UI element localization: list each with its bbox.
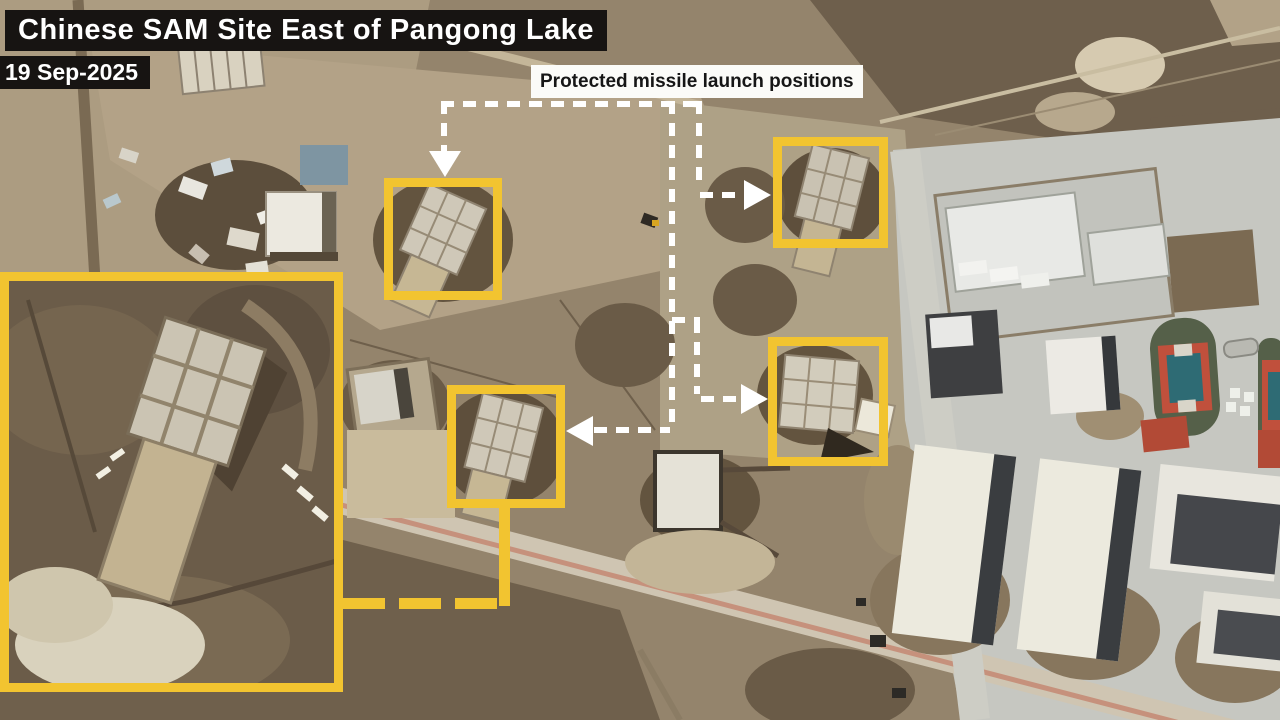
highlight-box-launch-position-1 <box>384 178 502 300</box>
down-arrow-icon <box>429 151 461 177</box>
dashed-path-to-box3-vertical <box>694 320 700 394</box>
date-badge: 19 Sep-2025 <box>0 56 150 89</box>
dashed-path-to-box3-horizontal <box>701 396 742 402</box>
inset-connector-line-dashed <box>343 598 503 609</box>
dark-roof-building <box>925 310 1003 399</box>
right-arrow-icon <box>741 384 768 414</box>
apron-centre <box>347 430 455 518</box>
page-title: Chinese SAM Site East of Pangong Lake <box>5 10 607 51</box>
callout-label: Protected missile launch positions <box>531 65 863 98</box>
white-building-west <box>266 192 338 261</box>
left-arrow-icon <box>566 416 593 446</box>
dark-panel-building-lower <box>1196 591 1280 671</box>
dashed-path-to-box2-horizontal <box>700 192 744 198</box>
dashed-path-to-box4 <box>594 427 670 433</box>
dashed-path-to-box2-vertical <box>696 101 702 188</box>
dashed-path-to-box1 <box>441 101 447 153</box>
highlight-box-launch-position-3 <box>768 337 888 466</box>
highlight-box-launch-position-2 <box>773 137 888 248</box>
inset-connector-line-vertical <box>499 504 510 606</box>
dashed-path-main-vertical <box>669 101 675 429</box>
dark-panel-building <box>1150 464 1280 581</box>
dashed-path-top-horizontal <box>441 101 701 107</box>
highlight-box-launch-position-4 <box>447 385 565 508</box>
zoom-inset-frame <box>0 272 343 692</box>
annotated-satellite-graphic: Chinese SAM Site East of Pangong Lake 19… <box>0 0 1280 720</box>
small-shelter <box>1223 338 1259 359</box>
right-arrow-icon <box>744 180 771 210</box>
white-building-garrison <box>1046 336 1121 415</box>
